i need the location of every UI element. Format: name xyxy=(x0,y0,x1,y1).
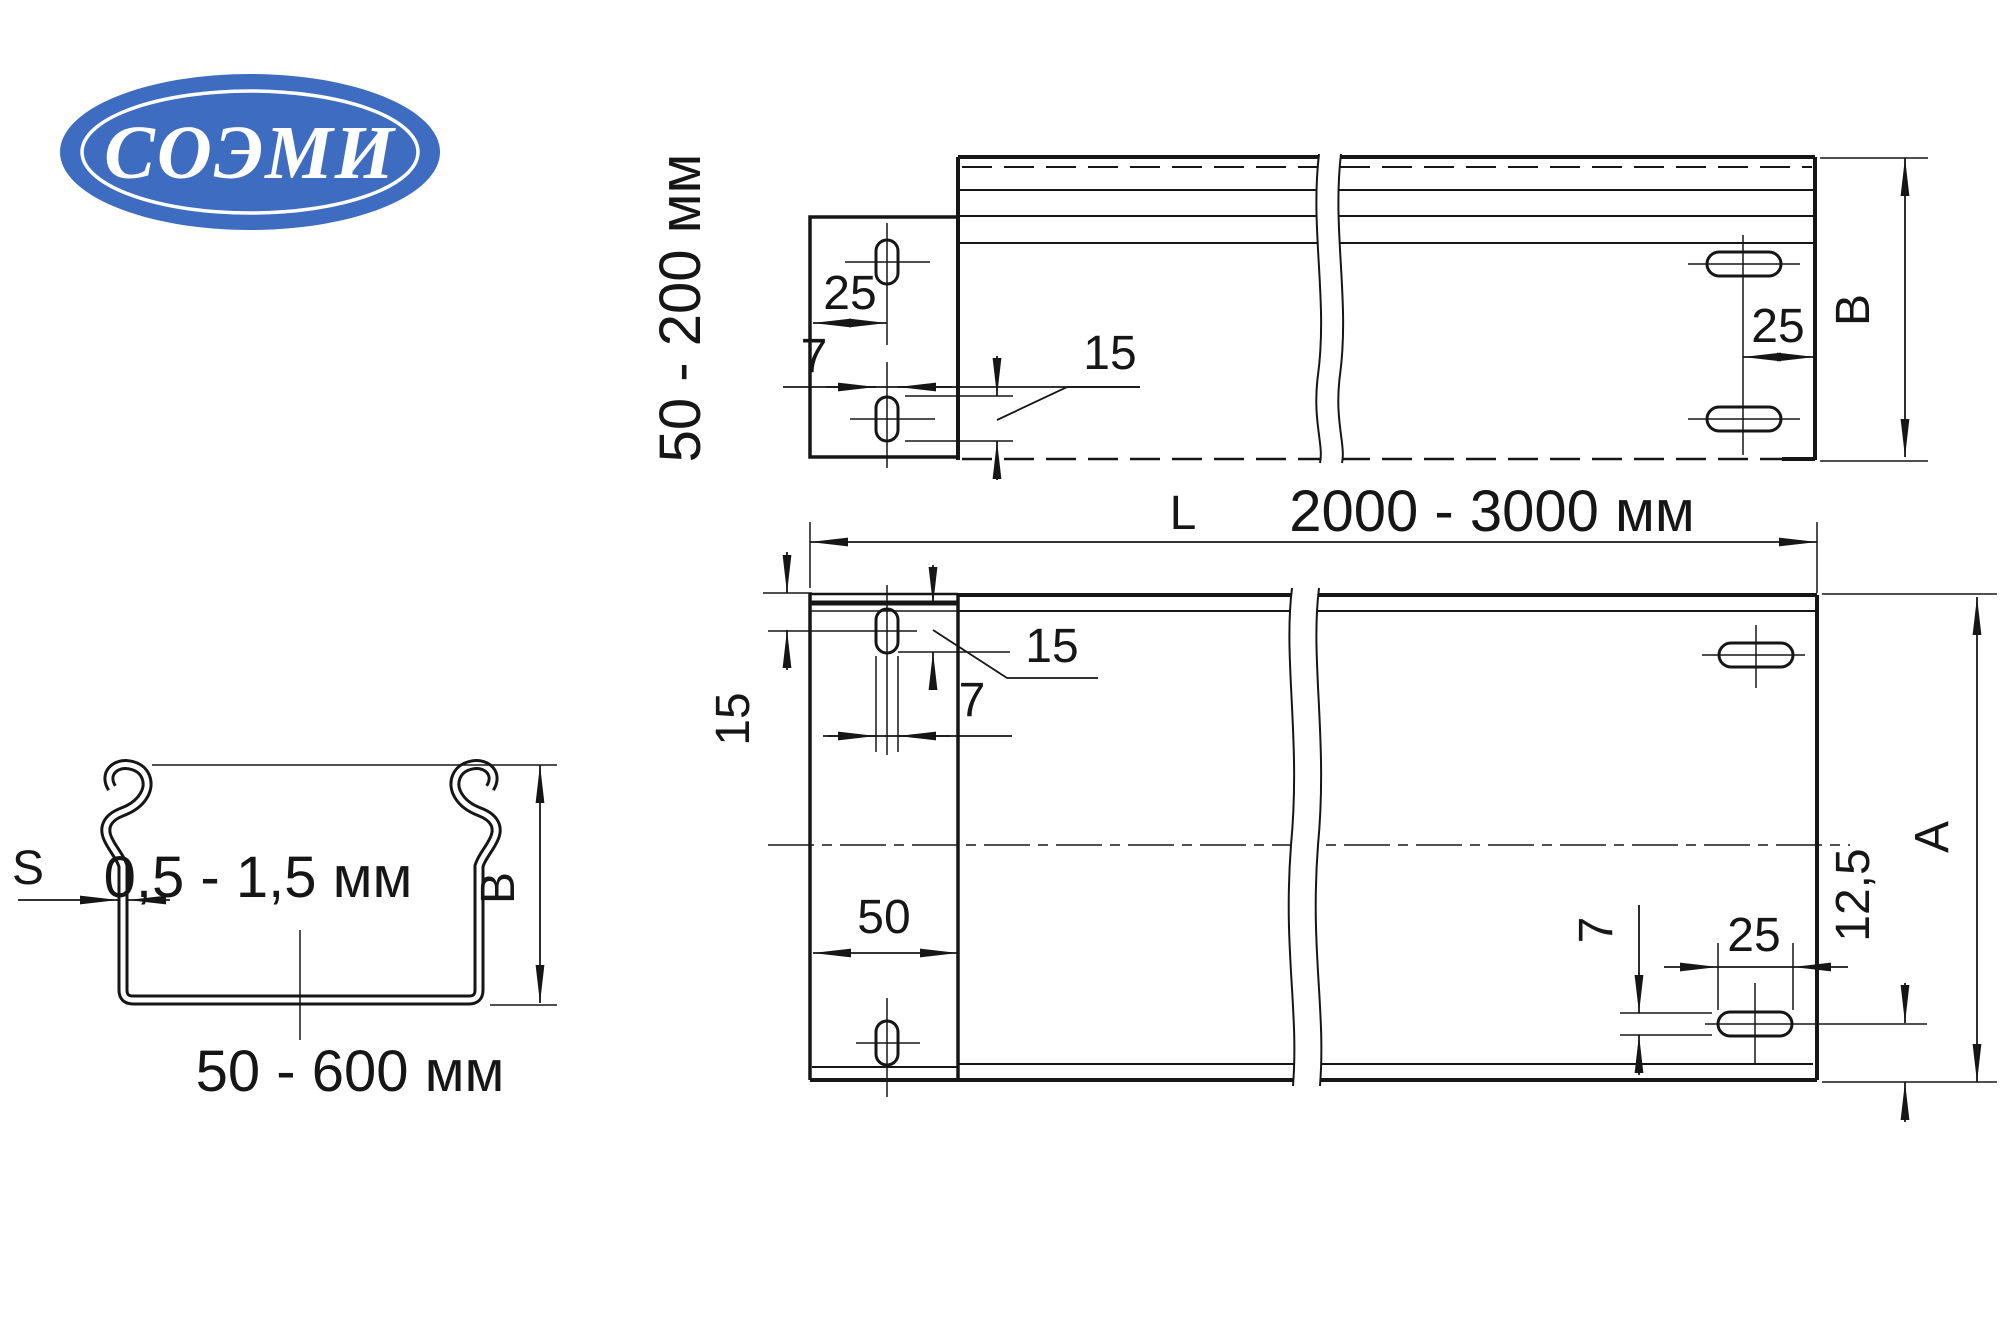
logo-text: СОЭМИ xyxy=(104,111,397,195)
technical-drawing: СОЭМИ xyxy=(0,0,2000,1333)
dim-text-7: 7 xyxy=(959,674,986,727)
leader-line xyxy=(997,387,1140,420)
width-range: 50 - 600 мм xyxy=(196,1039,505,1104)
section-view-labels: S 0,5 - 1,5 мм B 50 - 600 мм xyxy=(12,842,525,1104)
dim-text-A: A xyxy=(1906,821,1959,853)
dim-text-15: 15 xyxy=(707,692,760,745)
drawing-page: СОЭМИ xyxy=(0,0,2000,1333)
logo: СОЭМИ xyxy=(60,74,440,230)
thickness-label: S xyxy=(12,842,44,895)
side-bracket xyxy=(810,217,958,457)
dim-text-25: 25 xyxy=(823,267,876,320)
dim-text-12-5: 12,5 xyxy=(1827,848,1880,941)
dim-text-25: 25 xyxy=(1751,300,1804,353)
dim-text-7: 7 xyxy=(801,330,828,383)
side-height-range-label: 50 - 200 мм xyxy=(648,154,713,463)
dim-text-50: 50 xyxy=(857,891,910,944)
dim-text-B: B xyxy=(472,872,525,904)
dim-text-15: 15 xyxy=(1025,620,1078,673)
dim-text-15: 15 xyxy=(1083,327,1136,380)
thickness-range: 0,5 - 1,5 мм xyxy=(104,845,413,910)
plan-view-labels: L 2000 - 3000 мм 15 15 7 50 7 25 12,5 A xyxy=(707,479,1959,962)
side-view-labels: 50 - 200 мм 25 7 15 25 B xyxy=(648,154,1880,463)
dim-text-7: 7 xyxy=(1570,917,1623,944)
length-prefix: L xyxy=(1170,487,1197,540)
length-range: 2000 - 3000 мм xyxy=(1289,479,1694,544)
plan-view xyxy=(763,522,1997,1122)
dim-text-B: B xyxy=(1827,294,1880,326)
dim-text-25: 25 xyxy=(1727,909,1780,962)
